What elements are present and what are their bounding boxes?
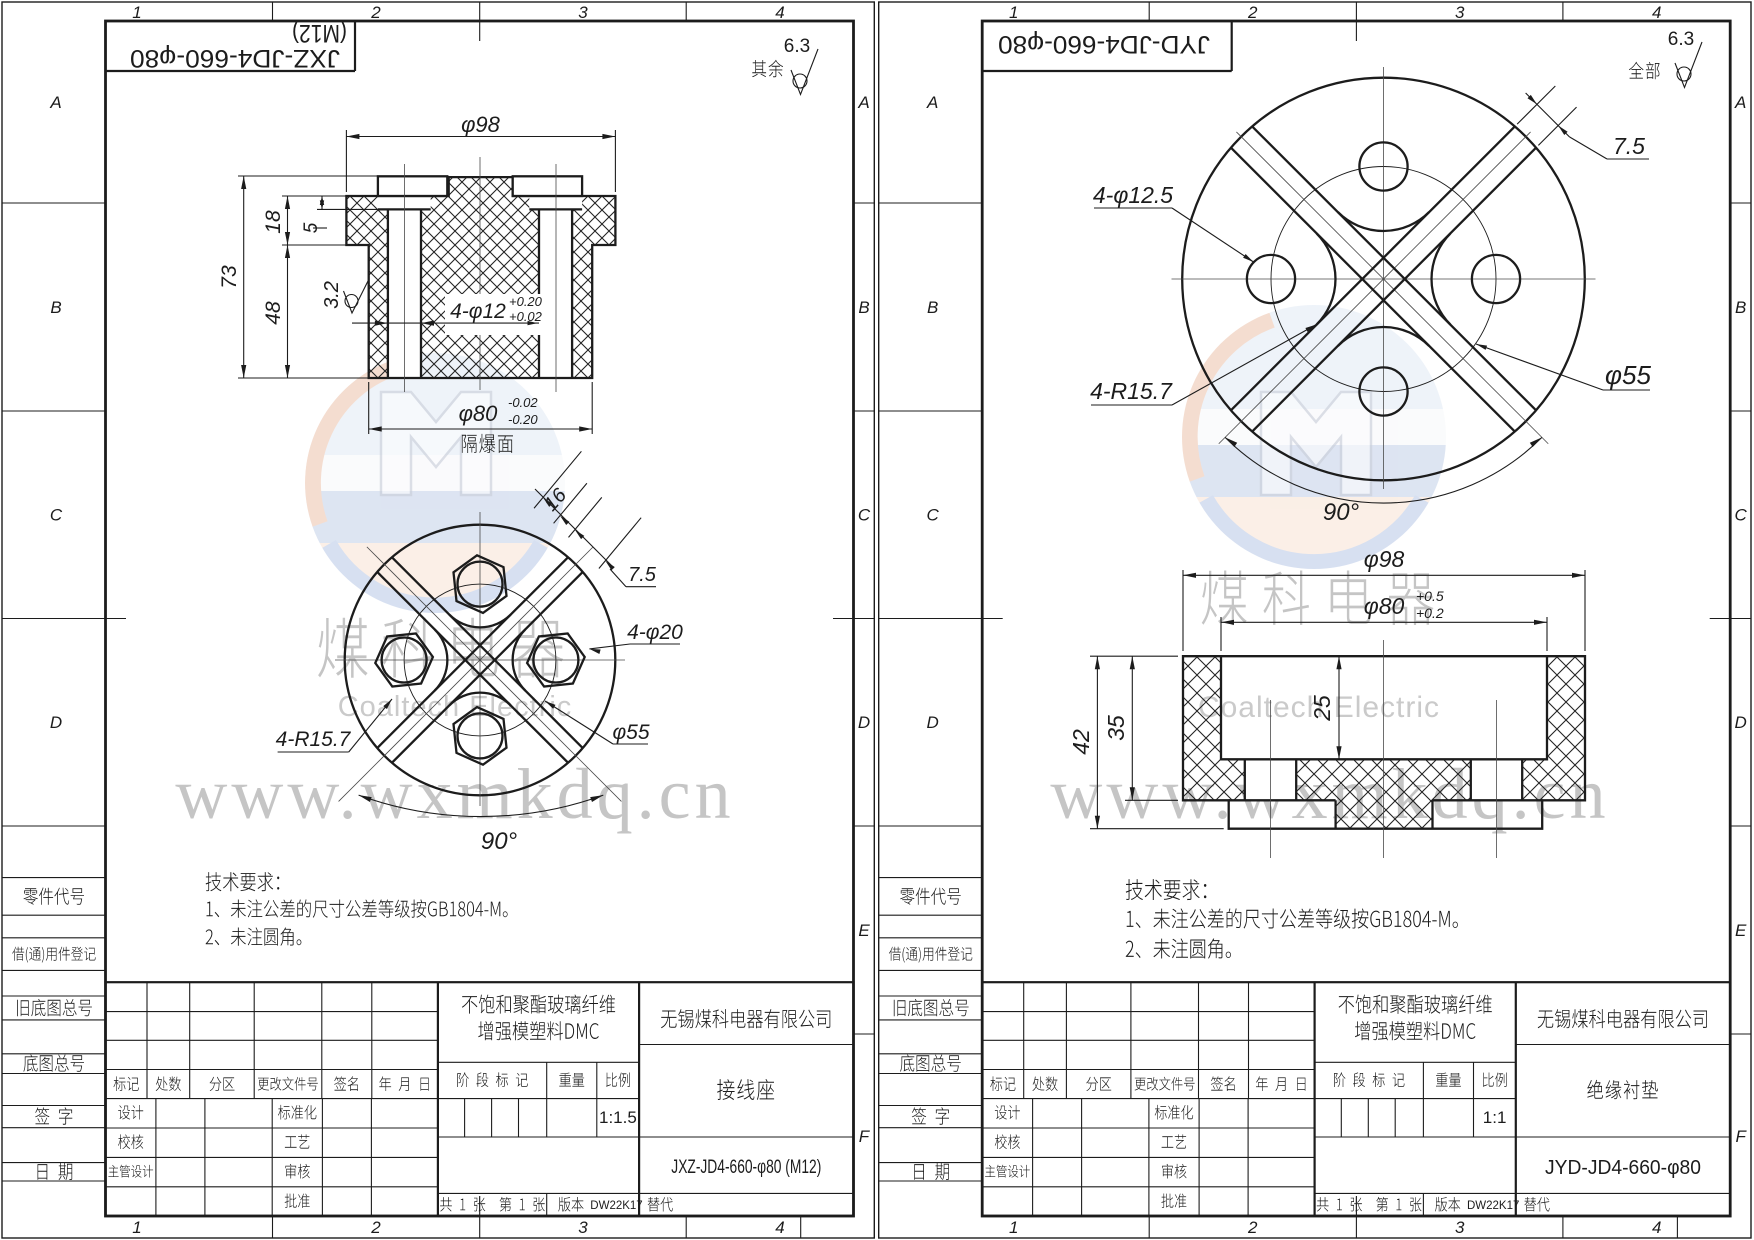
svg-text:48: 48 (262, 301, 285, 325)
svg-text:4-φ12: 4-φ12 (450, 300, 506, 323)
svg-text:JXZ-JD4-660-φ80: JXZ-JD4-660-φ80 (130, 44, 340, 72)
svg-text:φ98: φ98 (1364, 546, 1405, 572)
svg-text:4-R15.7: 4-R15.7 (276, 728, 352, 751)
svg-text:(M12): (M12) (292, 19, 347, 47)
svg-text:φ55: φ55 (1605, 360, 1651, 390)
svg-text:φ55: φ55 (612, 721, 649, 744)
svg-text:+0.5: +0.5 (1416, 588, 1444, 604)
svg-text:JXZ-JD4-660-φ80 (M12): JXZ-JD4-660-φ80 (M12) (671, 1157, 821, 1178)
svg-text:φ80: φ80 (459, 401, 499, 426)
svg-text:+0.20: +0.20 (509, 294, 543, 309)
svg-text:4-φ20: 4-φ20 (627, 621, 683, 644)
svg-text:6.3: 6.3 (784, 36, 810, 57)
svg-text:DW22K17: DW22K17 (590, 1200, 642, 1212)
svg-text:25: 25 (1309, 695, 1335, 722)
svg-text:3.2: 3.2 (321, 281, 343, 309)
svg-text:90°: 90° (1323, 499, 1360, 526)
svg-text:7.5: 7.5 (1613, 133, 1645, 159)
svg-text:4-R15.7: 4-R15.7 (1090, 378, 1173, 404)
svg-text:JYD-JD4-660-φ80: JYD-JD4-660-φ80 (998, 30, 1210, 58)
svg-text:+0.02: +0.02 (509, 309, 543, 324)
svg-text:φ98: φ98 (461, 112, 501, 137)
svg-text:φ80: φ80 (1364, 593, 1405, 619)
svg-text:+0.2: +0.2 (1416, 605, 1444, 621)
svg-text:42: 42 (1068, 729, 1094, 755)
svg-text:7.5: 7.5 (628, 564, 657, 586)
svg-text:18: 18 (262, 210, 285, 234)
svg-text:90°: 90° (481, 828, 518, 855)
svg-text:35: 35 (1103, 715, 1129, 741)
svg-text:6.3: 6.3 (1668, 29, 1694, 50)
svg-text:-0.02: -0.02 (508, 395, 538, 410)
svg-text:73: 73 (218, 265, 241, 289)
svg-text:-0.20: -0.20 (508, 412, 538, 427)
svg-text:JYD-JD4-660-φ80: JYD-JD4-660-φ80 (1545, 1157, 1701, 1179)
svg-text:DW22K17: DW22K17 (1467, 1200, 1519, 1212)
svg-text:Coaltech Electric: Coaltech Electric (338, 691, 573, 723)
svg-text:1:1: 1:1 (1483, 1108, 1507, 1127)
svg-text:4-φ12.5: 4-φ12.5 (1093, 182, 1173, 208)
svg-text:1:1.5: 1:1.5 (599, 1108, 637, 1127)
